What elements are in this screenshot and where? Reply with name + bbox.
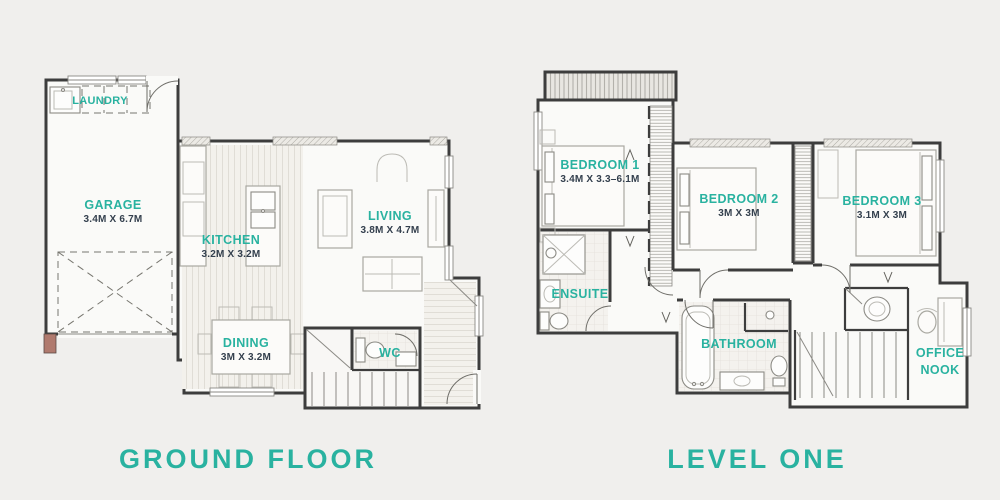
masonry-pier [44,334,56,353]
living-corner-sill [430,137,447,145]
ensuite-toilet [550,313,568,329]
bedroom1-wardrobe [650,106,672,286]
ground-floor-plan: LAUNDRY GARAGE 3.4M X 6.7M KITCHEN 3.2M … [44,76,483,408]
kitchen-window-sill [182,137,210,145]
office-nook-label-line2: NOOK [920,363,959,377]
garage-windows [68,76,146,84]
wc-label: WC [379,346,401,360]
wc-cistern [356,338,365,362]
laundry-label: LAUNDRY [72,95,128,107]
floor-plans-image: LAUNDRY GARAGE 3.4M X 6.7M KITCHEN 3.2M … [0,0,1000,500]
bedroom1-dims: 3.4M X 3.3–6.1M [560,174,639,185]
kitchen-dims: 3.2M X 3.2M [202,249,261,260]
bedroom2-label: BEDROOM 2 [699,192,778,206]
bathroom-label: BATHROOM [701,337,777,351]
living-label: LIVING [368,209,412,223]
living-dims: 3.8M X 4.7M [361,225,420,236]
level-one-plan: BEDROOM 1 3.4M X 3.3–6.1M BEDROOM 2 3M X… [534,72,971,407]
bedroom2-3-wardrobe [795,146,811,261]
bedroom3-label: BEDROOM 3 [842,194,921,208]
ground-stairs-wc [305,328,420,408]
bedroom3-dims: 3.1M X 3M [857,210,907,221]
shower-head [766,311,774,319]
ground-floor-title: GROUND FLOOR [119,444,377,474]
living-window-sill [273,137,337,145]
office-chair [918,311,936,333]
garage-label: GARAGE [84,198,141,212]
level-one-title: LEVEL ONE [667,444,847,474]
kitchen-counter [180,146,206,266]
ensuite-cistern [540,312,549,330]
dining-label: DINING [223,336,269,350]
bedroom2-dims: 3M X 3M [718,208,759,219]
kitchen-label: KITCHEN [202,233,260,247]
entry-wood-floor [424,282,476,405]
balcony-deck [545,72,676,100]
bathroom-vanity [720,372,764,390]
dining-dims: 3M X 3.2M [221,352,271,363]
bedroom1-bed [540,130,624,242]
bathroom-toilet [771,356,787,376]
office-nook-label-line1: OFFICE [916,346,964,360]
garage-dims: 3.4M X 6.7M [84,214,143,225]
ensuite-label: ENSUITE [552,287,609,301]
bedroom1-label: BEDROOM 1 [560,158,639,172]
